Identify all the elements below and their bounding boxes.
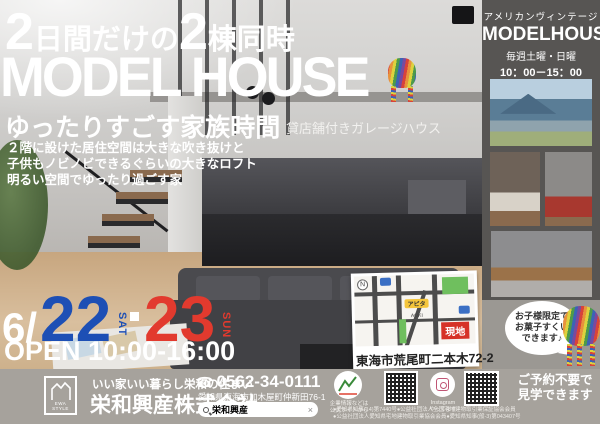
hero-description: ２階に設けた居住空間は大きな吹き抜けと 子供もノビノビできるぐらいの大きなロフト… [7, 140, 257, 188]
reservation-line: ご予約不要で [512, 373, 598, 388]
sidebar-title: MODELHOUSE [482, 24, 600, 46]
footer: EWA STYLE いい家いい暮らし栄和の住まい 栄和興産株式会社 ☎0562-… [0, 369, 600, 424]
company-logo: EWA STYLE [44, 376, 77, 415]
route-shield [380, 278, 391, 286]
map-road [372, 276, 379, 346]
phone-number: 0562-34-0111 [216, 372, 320, 391]
search-box[interactable]: × [198, 402, 318, 417]
event-day-sat-label: SAT [116, 312, 128, 336]
close-icon[interactable]: × [308, 405, 313, 415]
flyer: 2日間だけの2棟同時 MODEL HOUSE ゆったりすごす家族時間 貸店舗付き… [0, 0, 600, 424]
open-hours: OPEN 10:00-16:00 [4, 336, 235, 367]
search-icon [203, 407, 209, 413]
instagram-qr-code [464, 371, 499, 406]
phone-row: ☎0562-34-0111 [196, 372, 320, 392]
route-shield [459, 306, 470, 314]
license-text: ●愛知県知事(14)第7440号●公益社団法人全国宅地建物取引業保証協会会員 ●… [333, 407, 597, 421]
map-road [432, 274, 439, 344]
logo-label: EWA STYLE [46, 401, 75, 411]
map-site-badge: 現地 [441, 322, 469, 340]
photo-house-exterior [490, 79, 592, 146]
map-label-aoki: AOKI [411, 313, 423, 319]
search-input[interactable] [212, 405, 308, 415]
phone-icon: ☎ [196, 374, 213, 390]
photo-living-room [545, 152, 592, 226]
zebra-figurine-small [388, 58, 416, 88]
description-line: 子供もノビノビできるぐらいの大きなロフト [7, 156, 257, 172]
site-address: 東海市荒尾町二本木72-2 [356, 347, 476, 369]
hero-title: MODEL HOUSE [0, 44, 368, 109]
date-separator-square [130, 312, 139, 321]
map-park [442, 277, 468, 295]
map-green-strip [399, 319, 407, 343]
license-line: ●公益社団法人愛知県宅地建物取引業協会会員●愛知県知事(般-3)第043407号 [333, 414, 597, 421]
zebra-figurine-large [563, 306, 600, 346]
website-logo-icon [334, 371, 362, 399]
map: アピタ AOKI 現地 N [354, 273, 476, 346]
access-map-card: アピタ AOKI 現地 N 東海市荒尾町二本木72-2 [351, 270, 479, 369]
reservation-line: 見学できます [512, 388, 598, 403]
house-icon [51, 381, 71, 401]
kitchen-island [202, 214, 482, 266]
stair-step [116, 192, 168, 199]
sidebar-model-house: アメリカンヴィンテージ MODELHOUSE 毎週土曜・日曜 10：00－15：… [482, 0, 600, 300]
instagram-icon [430, 372, 455, 397]
stair-step [102, 214, 154, 221]
wall-speaker [452, 6, 474, 24]
stair-step [88, 236, 140, 243]
license-line: ●愛知県知事(14)第7440号●公益社団法人全国宅地建物取引業保証協会会員 [333, 407, 597, 414]
map-label-apita: アピタ [404, 299, 428, 309]
sofa-cushion [268, 276, 332, 302]
photo-kitchen [491, 231, 592, 297]
sidebar-schedule: 毎週土曜・日曜 [482, 48, 600, 63]
hero-tag: 貸店舗付きガレージハウス [286, 118, 441, 137]
event-day-sun-label: SUN [220, 312, 232, 338]
description-line: 明るい空間でゆったり過ごす家 [7, 172, 257, 188]
hero-subtitle: ゆったりすごす家族時間 [5, 108, 280, 144]
kitchen-appliance [408, 180, 466, 214]
website-qr-code [384, 371, 418, 405]
reservation-note: ご予約不要で 見学できます [512, 373, 598, 403]
sidebar-hours: 10：00－15：00 [482, 64, 600, 80]
sidebar-category: アメリカンヴィンテージ [482, 9, 600, 23]
chart-mountain-icon [334, 371, 362, 399]
compass-icon: N [357, 279, 368, 290]
photo-entry-hall [490, 152, 540, 226]
description-line: ２階に設けた居住空間は大きな吹き抜けと [7, 140, 257, 156]
